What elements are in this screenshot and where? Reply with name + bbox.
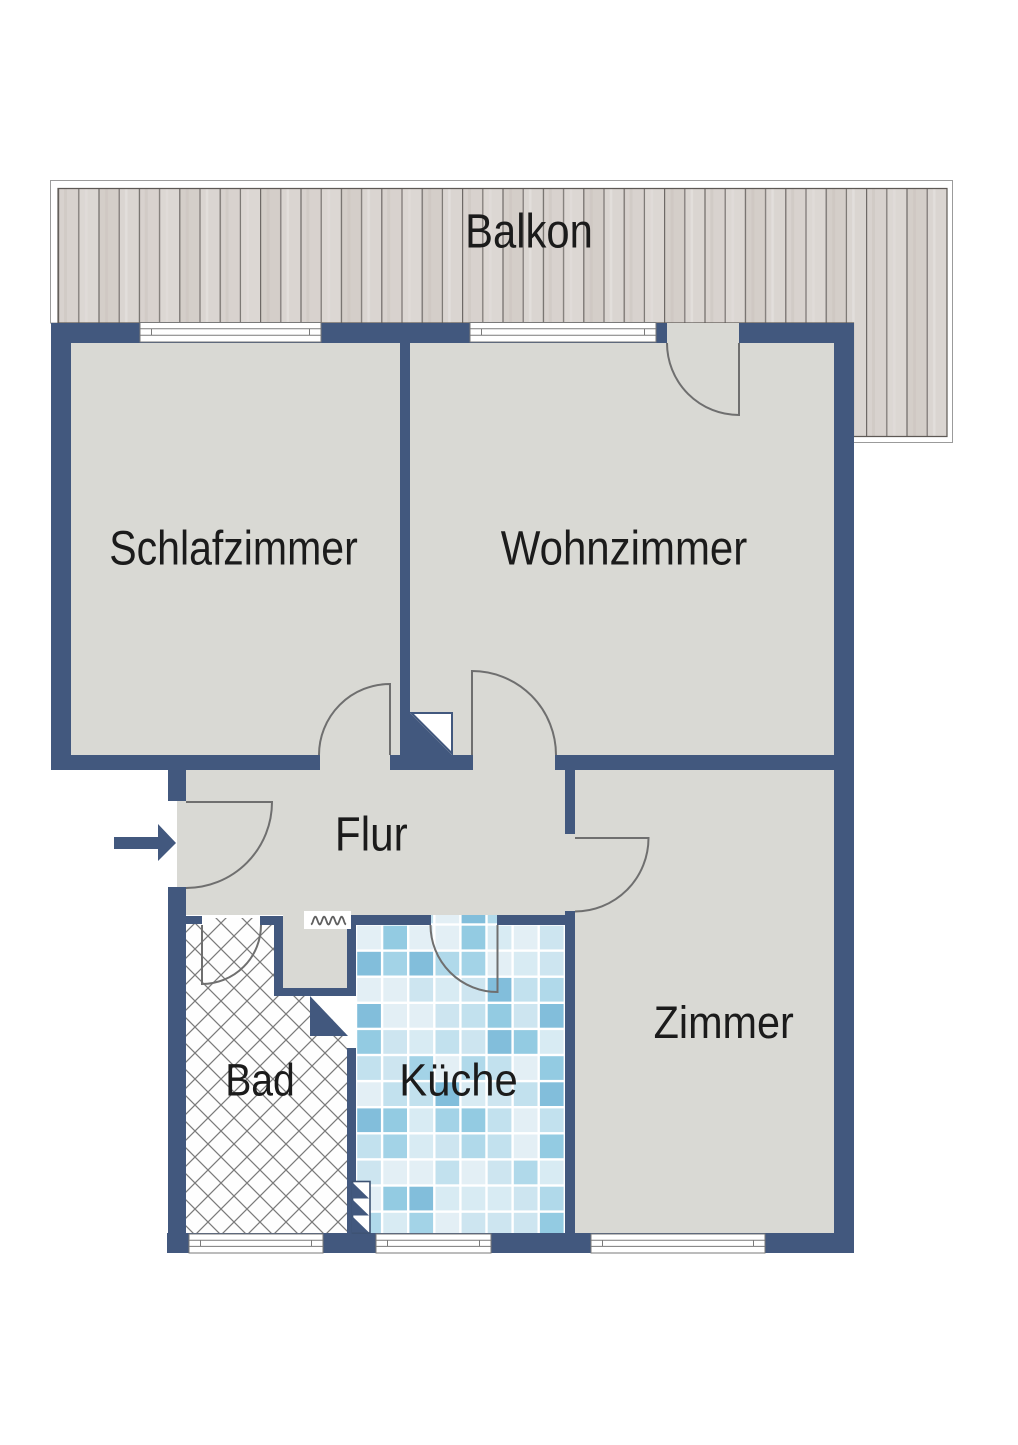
svg-text:Bad: Bad [225, 1055, 295, 1105]
svg-text:Zimmer: Zimmer [654, 998, 794, 1048]
svg-text:Balkon: Balkon [465, 204, 593, 258]
svg-text:Flur: Flur [335, 807, 408, 861]
svg-text:Küche: Küche [399, 1056, 518, 1106]
svg-text:Wohnzimmer: Wohnzimmer [501, 521, 747, 575]
svg-text:Schlafzimmer: Schlafzimmer [109, 523, 358, 576]
